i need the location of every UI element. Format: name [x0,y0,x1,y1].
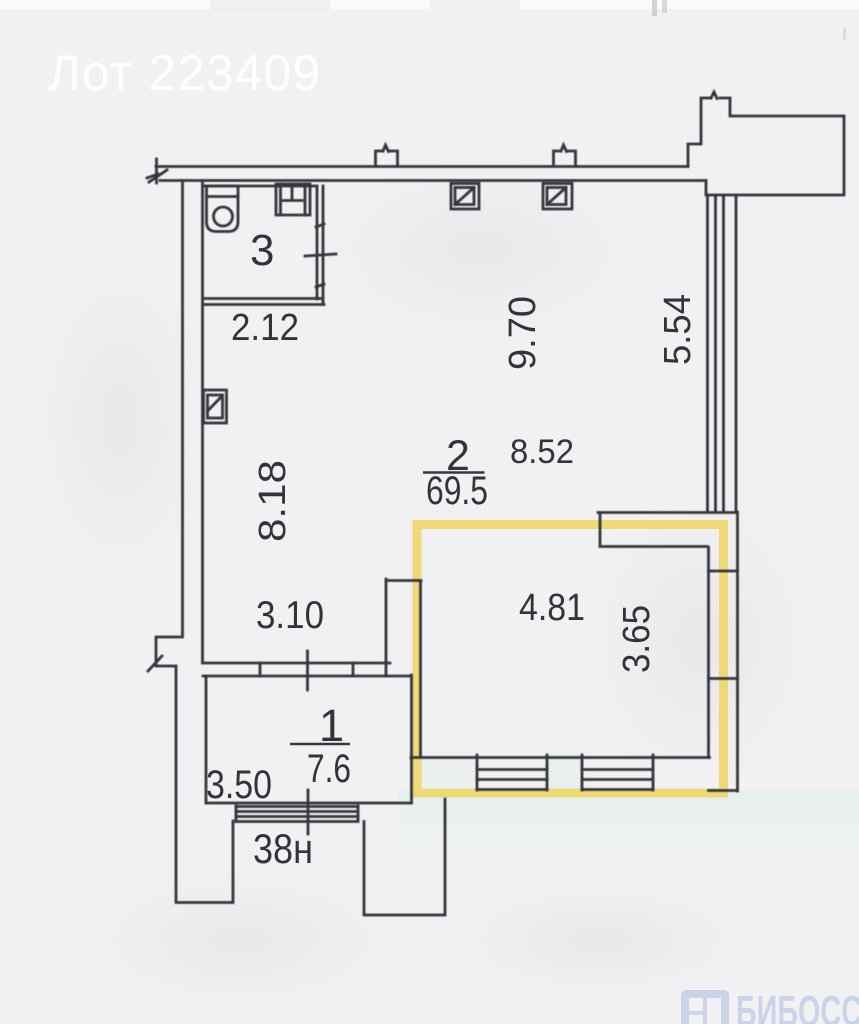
svg-text:4.81: 4.81 [519,587,585,629]
svg-text:38н: 38н [253,825,313,872]
svg-text:7.6: 7.6 [307,747,351,791]
svg-text:3.50: 3.50 [206,763,272,807]
svg-text:БИБОСС: БИБОСС [736,987,859,1024]
svg-text:3.10: 3.10 [256,594,324,637]
svg-text:9.70: 9.70 [502,296,544,370]
svg-text:Лот 223409: Лот 223409 [48,45,321,101]
svg-text:2.12: 2.12 [231,307,299,349]
svg-text:3.65: 3.65 [616,605,658,673]
svg-text:8.52: 8.52 [510,433,574,471]
svg-text:8.18: 8.18 [252,460,294,542]
svg-text:3: 3 [250,226,274,275]
svg-text:69.5: 69.5 [426,469,488,513]
svg-text:5.54: 5.54 [657,294,699,365]
